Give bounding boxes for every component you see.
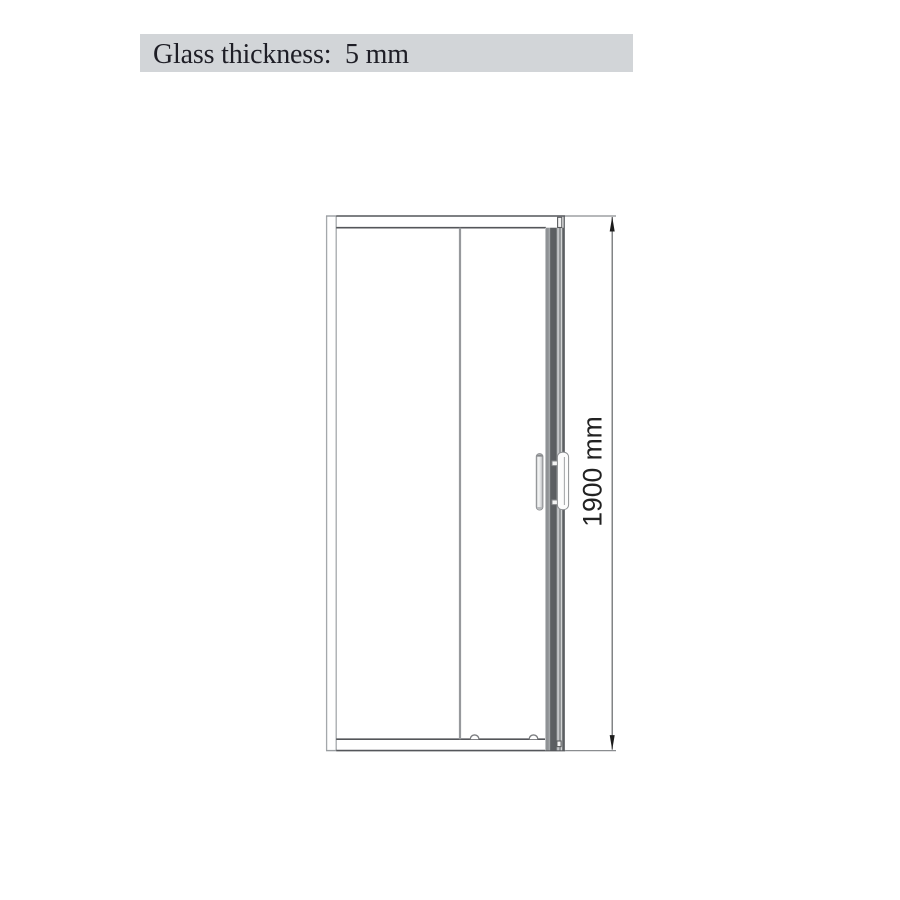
svg-text:1900 mm: 1900 mm — [578, 416, 608, 526]
